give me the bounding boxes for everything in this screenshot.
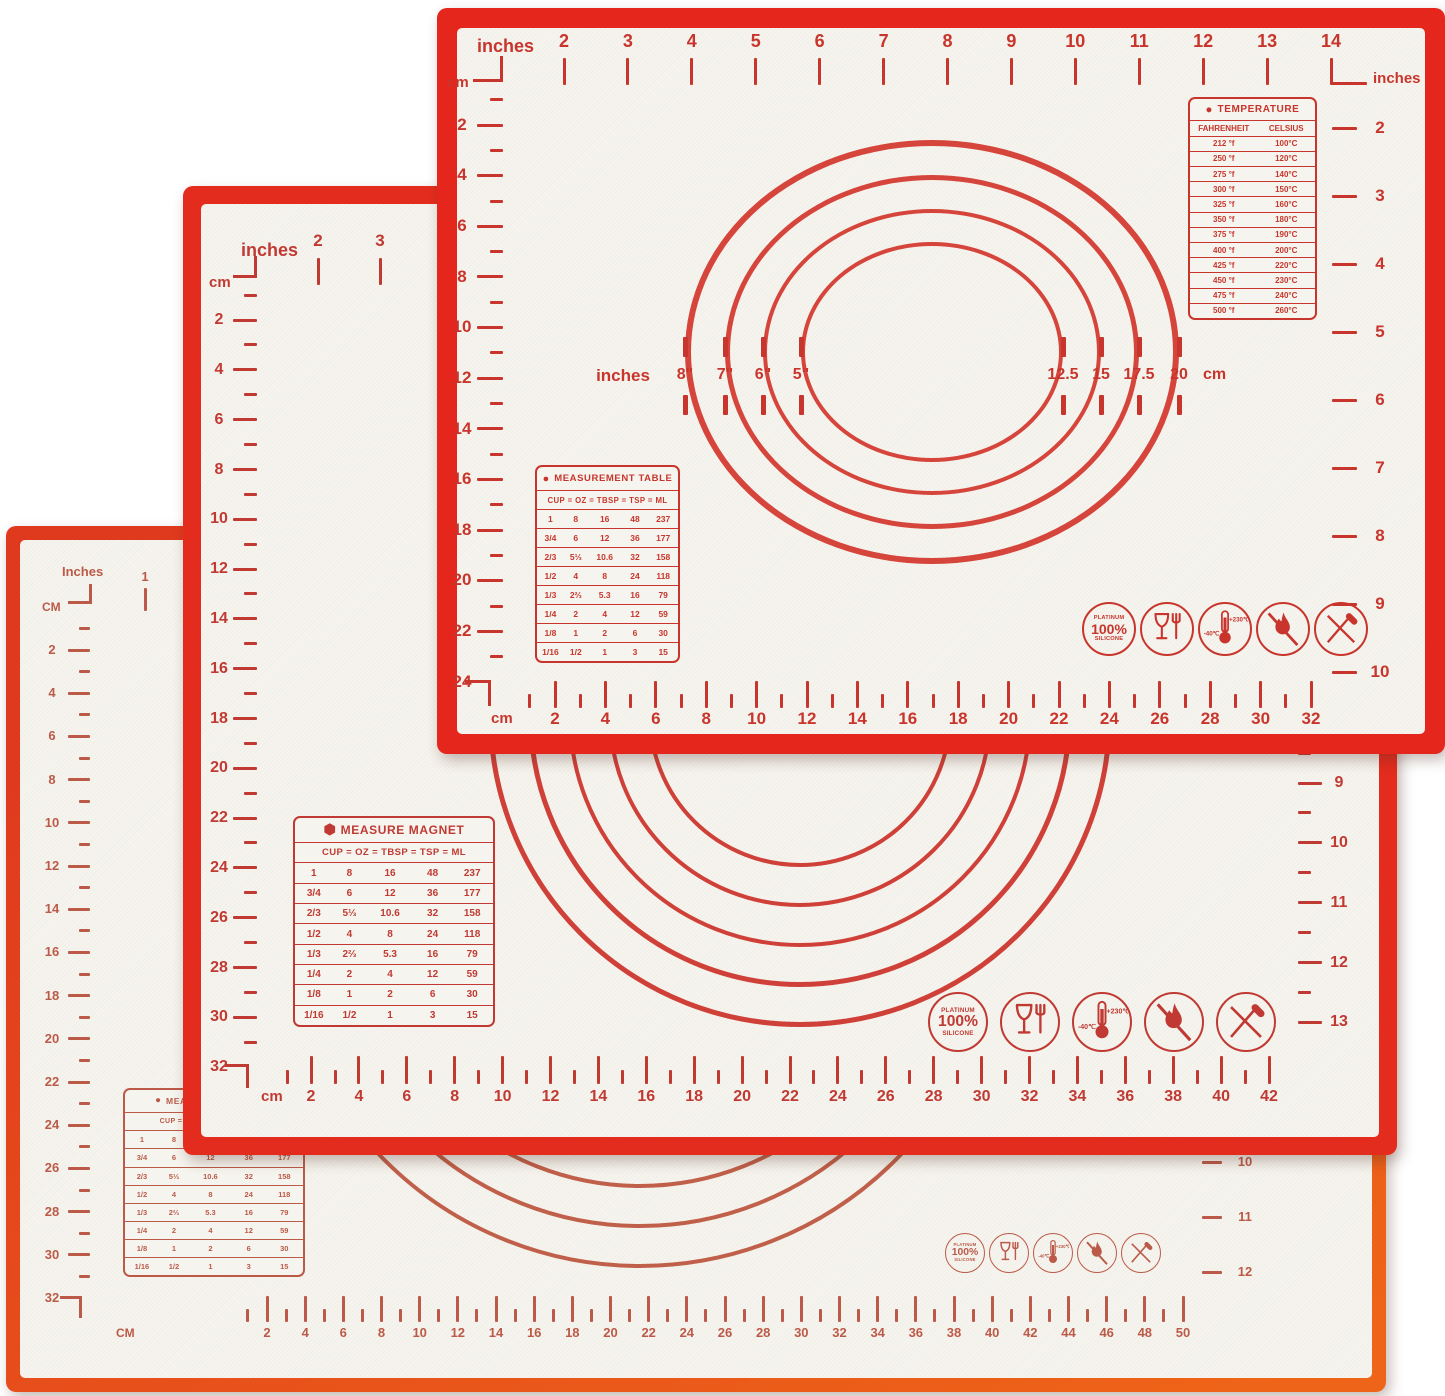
table-cell: 6 — [159, 1153, 189, 1162]
ruler-number: 34 — [1053, 1088, 1101, 1106]
ruler-tick — [477, 124, 503, 127]
ruler-tick — [1124, 1056, 1127, 1084]
ruler-tick — [244, 991, 257, 994]
table-cell: 3 — [232, 1262, 266, 1271]
ruler-tick — [693, 1056, 696, 1084]
ruler-tick — [946, 58, 949, 85]
table-cell: 36 — [414, 888, 452, 899]
table-cell: 1/2 — [159, 1262, 189, 1271]
table-header-cell: FAHRENHEIT — [1190, 124, 1258, 133]
table-row: 2/35⅓10.632158 — [295, 903, 493, 923]
ruler-tick — [68, 1037, 90, 1040]
ruler-tick — [1138, 58, 1141, 85]
ruler-tick — [781, 1309, 784, 1322]
ruler-tick — [266, 1296, 269, 1322]
table-title-row: ●TEMPERATURE — [1190, 99, 1315, 120]
temperature-table: ●TEMPERATUREFAHRENHEITCELSIUS212 °f100°C… — [1188, 97, 1317, 320]
table-cell: 1 — [159, 1244, 189, 1253]
ruler-number: 7 — [1356, 459, 1404, 478]
ruler-number: 42 — [1245, 1088, 1293, 1106]
ruler-tick — [246, 1309, 249, 1322]
no-open-flame-icon — [1256, 602, 1310, 656]
ruler-tick — [477, 174, 503, 177]
ruler-tick — [79, 1059, 90, 1062]
ruler-tick — [932, 694, 935, 708]
ruler-tick — [244, 592, 257, 595]
ruler-number: 2 — [287, 1088, 335, 1106]
ruler-number: 4 — [581, 710, 629, 729]
table-cell: 1 — [366, 1010, 414, 1021]
table-cell: 120°C — [1258, 154, 1316, 163]
table-cell: 190°C — [1258, 230, 1316, 239]
table-cell: 1 — [588, 647, 622, 657]
ruler-tick — [68, 1124, 90, 1127]
ruler-tick — [800, 1296, 803, 1322]
table-row: 425 °f220°C — [1190, 257, 1315, 272]
ruler-tick — [68, 778, 90, 781]
ruler-tick — [1162, 1309, 1165, 1322]
table-cell: 15 — [266, 1262, 303, 1271]
measurement-table: ●MEASUREMENT TABLECUP = OZ = TBSP = TSP … — [535, 465, 680, 663]
ruler-tick — [233, 568, 257, 571]
table-cell: 220°C — [1258, 261, 1316, 270]
silicone-mat-front-top: inches8"7"6"5"12.51517.520cminches234567… — [437, 8, 1445, 754]
ruler-number: 18 — [670, 1088, 718, 1106]
table-row: 3/461236177 — [295, 883, 493, 903]
ruler-number: 38 — [1149, 1088, 1197, 1106]
ruler-tick — [932, 1056, 935, 1084]
ruler-tick — [1298, 931, 1311, 934]
ruler-tick — [68, 908, 90, 911]
ruler-tick — [724, 1296, 727, 1322]
platinum-text: SILICONE — [942, 1030, 973, 1037]
table-cell: 4 — [564, 571, 588, 581]
ruler-unit-label: CM — [116, 1326, 135, 1340]
platinum-text: SILICONE — [1095, 636, 1123, 643]
table-cell: 16 — [366, 868, 414, 879]
table-cell: 10.6 — [189, 1172, 232, 1181]
ruler-tick — [490, 503, 503, 506]
ruler-tick — [68, 951, 90, 954]
ruler-number: 18 — [934, 710, 982, 729]
table-cell: 32 — [622, 552, 649, 562]
ruler-number: 12 — [1179, 32, 1227, 52]
ruler-tick — [669, 1070, 672, 1084]
food-grade-icon — [1140, 602, 1194, 656]
ruler-tick — [1268, 1056, 1271, 1084]
ruler-tick — [705, 681, 708, 708]
ruler-tick — [895, 1309, 898, 1322]
table-title: MEASURE MAGNET — [341, 823, 465, 837]
ruler-tick — [323, 1309, 326, 1322]
ruler-tick — [571, 1296, 574, 1322]
ruler-tick — [477, 579, 503, 582]
ruler-tick — [490, 250, 503, 253]
ruler-tick — [1143, 1296, 1146, 1322]
table-cell: 100°C — [1258, 139, 1316, 148]
table-cell: 1/3 — [125, 1208, 159, 1217]
ruler-tick — [1105, 1296, 1108, 1322]
table-cell: 2 — [366, 989, 414, 1000]
ruler-tick — [717, 1070, 720, 1084]
ruler-number: 5 — [1356, 323, 1404, 342]
ruler-number: 2 — [531, 710, 579, 729]
ruler-number: 32 — [1287, 710, 1335, 729]
circle-label-tick — [1177, 395, 1182, 415]
ruler-tick — [233, 617, 257, 620]
table-cell: 400 °f — [1190, 246, 1258, 255]
ruler-tick — [490, 98, 503, 101]
ruler-number: 8 — [924, 32, 972, 52]
ruler-tick — [765, 1070, 768, 1084]
temp-min-label: -40℃ — [1204, 630, 1220, 637]
table-row: 450 °f230°C — [1190, 272, 1315, 287]
table-cell: 3/4 — [125, 1153, 159, 1162]
ruler-tick — [789, 1056, 792, 1084]
no-knife-icon-glyph — [1220, 996, 1272, 1048]
ruler-unit-label: Inches — [62, 564, 103, 579]
circle-label-tick — [1137, 337, 1142, 357]
table-cell: 4 — [588, 609, 622, 619]
ruler-tick — [1052, 1070, 1055, 1084]
table-cell: 475 °f — [1190, 291, 1258, 300]
temp-min-label: -40℃ — [1038, 1253, 1049, 1258]
ruler-tick — [68, 1167, 90, 1170]
table-cell: 1/2 — [125, 1190, 159, 1199]
product-image-baking-mat-set: Inches1CM2468101214161820222426283032●ME… — [0, 0, 1445, 1396]
ruler-tick — [285, 1309, 288, 1322]
ruler-tick — [79, 627, 90, 630]
circle-label-tick — [683, 395, 688, 415]
ruler-number: 26 — [862, 1088, 910, 1106]
ruler-tick — [1298, 961, 1322, 964]
circle-label-tick — [761, 395, 766, 415]
table-row: 1/161/21315 — [125, 1257, 303, 1275]
ruler-tick — [233, 767, 257, 770]
ruler-tick — [780, 694, 783, 708]
ruler-number: 10 — [479, 1088, 527, 1106]
circle-label-tick — [1099, 337, 1104, 357]
table-cell: 48 — [622, 514, 649, 524]
food-grade-icon-glyph — [993, 1237, 1025, 1269]
ruler-tick — [233, 418, 257, 421]
ruler-tick — [1332, 331, 1357, 334]
ruler-number: 9 — [987, 32, 1035, 52]
ruler-tick — [1209, 681, 1212, 708]
ruler-unit-label: cm — [447, 74, 469, 91]
table-cell: 1/8 — [125, 1244, 159, 1253]
ruler-tick — [1007, 681, 1010, 708]
circle-label-tick — [1061, 337, 1066, 357]
table-cell: 1/2 — [333, 1010, 367, 1021]
table-row: 1/4241259 — [537, 604, 678, 623]
table-cell: 8 — [588, 571, 622, 581]
ruler-tick — [654, 681, 657, 708]
temperature-range-icon-glyph: -40℃+230℃ — [1037, 1237, 1069, 1269]
ruler-tick — [490, 351, 503, 354]
no-knife-icon — [1121, 1233, 1161, 1273]
ruler-tick — [933, 1309, 936, 1322]
no-knife-icon-glyph — [1125, 1237, 1157, 1269]
ruler-unit-label: cm — [261, 1088, 283, 1105]
table-cell: 118 — [266, 1190, 303, 1199]
circle-label-tick — [799, 337, 804, 357]
ruler-tick — [906, 681, 909, 708]
temp-max-label: +230℃ — [1056, 1244, 1069, 1249]
ruler-corner-bracket — [465, 680, 491, 706]
diameter-circle — [801, 242, 1063, 462]
no-open-flame-icon-glyph — [1148, 996, 1200, 1048]
ruler-corner-bracket — [233, 256, 257, 278]
ruler-tick — [818, 58, 821, 85]
ruler-tick — [233, 368, 257, 371]
ruler-tick — [79, 713, 90, 716]
food-grade-icon — [989, 1233, 1029, 1273]
table-cell: 2⅔ — [564, 590, 588, 600]
ruler-tick — [79, 929, 90, 932]
ruler-number: 22 — [1035, 710, 1083, 729]
ruler-tick — [437, 1309, 440, 1322]
ruler-number: 8 — [1356, 527, 1404, 546]
ruler-number: 12 — [783, 710, 831, 729]
table-row: 1/812630 — [537, 623, 678, 642]
no-open-flame-icon — [1144, 992, 1204, 1052]
table-cell: 2/3 — [125, 1172, 159, 1181]
table-row: 300 °f150°C — [1190, 181, 1315, 196]
temperature-range-icon-glyph: -40℃+230℃ — [1202, 606, 1248, 652]
ruler-tick — [680, 694, 683, 708]
ruler-tick — [1100, 1070, 1103, 1084]
ruler-tick — [79, 1189, 90, 1192]
circle-label-tick — [723, 395, 728, 415]
table-row: 181648237 — [295, 862, 493, 882]
ruler-tick — [79, 1102, 90, 1105]
ruler-number: 2 — [294, 232, 342, 251]
ruler-tick — [1202, 1216, 1222, 1219]
ruler-tick — [741, 1056, 744, 1084]
table-cell: 5⅓ — [333, 908, 367, 919]
ruler-tick — [68, 1210, 90, 1213]
ruler-tick — [1234, 694, 1237, 708]
table-row: 1/4241259 — [295, 964, 493, 984]
table-row: 275 °f140°C — [1190, 166, 1315, 181]
measure-magnet-table: ⬢MEASURE MAGNETCUP = OZ = TBSP = TSP = M… — [293, 816, 495, 1027]
circle-label-tick — [723, 337, 728, 357]
table-cell: 1/4 — [295, 969, 333, 980]
table-cell: 12 — [232, 1226, 266, 1235]
table-row: 325 °f160°C — [1190, 196, 1315, 211]
ruler-tick — [244, 443, 257, 446]
ruler-tick — [244, 543, 257, 546]
table-cell: 6 — [232, 1244, 266, 1253]
no-knife-icon — [1314, 602, 1368, 656]
table-cell: 15 — [648, 647, 678, 657]
ruler-tick — [1298, 871, 1311, 874]
ruler-tick — [501, 1056, 504, 1084]
ruler-tick — [1032, 694, 1035, 708]
table-cell: 1 — [295, 868, 333, 879]
table-header-row: CUP = OZ = TBSP = TSP = ML — [537, 490, 678, 509]
table-row: 475 °f240°C — [1190, 288, 1315, 303]
ruler-number: 10 — [1315, 834, 1363, 852]
ruler-tick — [1184, 694, 1187, 708]
ruler-number: 4 — [335, 1088, 383, 1106]
ruler-tick — [79, 670, 90, 673]
table-row: 500 °f260°C — [1190, 303, 1315, 318]
table-cell: 3 — [414, 1010, 452, 1021]
table-cell: 8 — [366, 929, 414, 940]
ruler-tick — [554, 681, 557, 708]
table-cell: 59 — [266, 1226, 303, 1235]
ruler-number: 4 — [1356, 255, 1404, 274]
table-cell: 1/8 — [295, 989, 333, 1000]
table-cell: 16 — [232, 1208, 266, 1217]
temperature-range-icon: -40℃+230℃ — [1033, 1233, 1073, 1273]
ruler-tick — [233, 817, 257, 820]
table-header-cell: CELSIUS — [1258, 124, 1316, 133]
ruler-tick — [1010, 58, 1013, 85]
ruler-tick — [1172, 1056, 1175, 1084]
ruler-tick — [579, 694, 582, 708]
ruler-number: 14 — [1307, 32, 1355, 52]
ruler-tick — [1310, 681, 1313, 708]
ruler-number: 22 — [766, 1088, 814, 1106]
table-cell: 260°C — [1258, 306, 1316, 315]
table-cell: 118 — [648, 571, 678, 581]
ruler-tick — [490, 301, 503, 304]
table-cell: 2 — [189, 1244, 232, 1253]
table-cell: 450 °f — [1190, 276, 1258, 285]
platinum-percent: 100% — [1091, 622, 1127, 637]
table-cell: 10.6 — [366, 908, 414, 919]
table-cell: 8 — [564, 514, 588, 524]
ruler-tick — [79, 1145, 90, 1148]
ruler-tick — [244, 792, 257, 795]
ruler-tick — [477, 478, 503, 481]
ruler-tick — [1332, 127, 1357, 130]
table-cell: 230°C — [1258, 276, 1316, 285]
table-cell: 5⅓ — [159, 1172, 189, 1181]
no-open-flame-icon-glyph — [1081, 1237, 1113, 1269]
ruler-number: 10 — [1051, 32, 1099, 52]
ruler-number: 1 — [121, 570, 169, 584]
ruler-tick — [379, 258, 382, 285]
table-row: 350 °f180°C — [1190, 212, 1315, 227]
ruler-tick — [304, 1296, 307, 1322]
ruler-tick — [456, 1296, 459, 1322]
no-knife-icon — [1216, 992, 1276, 1052]
ruler-number: 30 — [958, 1088, 1006, 1106]
ruler-tick — [1244, 1070, 1247, 1084]
ruler-number: 11 — [1315, 894, 1363, 912]
ruler-number: 8 — [431, 1088, 479, 1106]
ruler-tick — [1298, 841, 1322, 844]
ruler-number: 16 — [884, 710, 932, 729]
ruler-tick — [1202, 1271, 1222, 1274]
table-row: 1/4241259 — [125, 1221, 303, 1239]
ruler-tick — [1108, 681, 1111, 708]
ruler-tick — [1330, 58, 1333, 85]
table-header-row: FAHRENHEITCELSIUS — [1190, 120, 1315, 135]
table-header-row: CUP = OZ = TBSP = TSP = ML — [295, 842, 493, 862]
table-row: 2/35⅓10.632158 — [125, 1167, 303, 1185]
ruler-tick — [244, 294, 257, 297]
ruler-tick — [244, 941, 257, 944]
ruler-number: 13 — [1243, 32, 1291, 52]
ruler-tick — [68, 865, 90, 868]
ruler-tick — [79, 1232, 90, 1235]
table-cell: 1/4 — [125, 1226, 159, 1235]
ruler-tick — [626, 58, 629, 85]
ruler-number: 12 — [1221, 1265, 1269, 1279]
ruler-number: 6 — [796, 32, 844, 52]
ruler-tick — [914, 1296, 917, 1322]
ruler-tick — [233, 518, 257, 521]
ruler-tick — [956, 1070, 959, 1084]
food-grade-icon-glyph — [1004, 996, 1056, 1048]
ruler-tick — [233, 916, 257, 919]
table-cell: 1/16 — [537, 647, 564, 657]
ruler-tick — [418, 1296, 421, 1322]
table-cell: 2/3 — [295, 908, 333, 919]
ruler-tick — [68, 1253, 90, 1256]
ruler-tick — [857, 1309, 860, 1322]
ruler-tick — [361, 1309, 364, 1322]
table-cell: 1 — [125, 1135, 159, 1144]
ruler-unit-label: CM — [42, 600, 61, 614]
ruler-number: 3 — [356, 232, 404, 251]
ruler-tick — [704, 1309, 707, 1322]
ruler-tick — [1332, 195, 1357, 198]
table-cell: 150°C — [1258, 185, 1316, 194]
ruler-tick — [233, 866, 257, 869]
table-title-row: ●MEASUREMENT TABLE — [537, 467, 678, 490]
ruler-tick — [490, 200, 503, 203]
ruler-tick — [836, 1056, 839, 1084]
ruler-unit-label: cm — [209, 274, 231, 291]
ruler-tick — [244, 692, 257, 695]
ruler-number: 14 — [574, 1088, 622, 1106]
ruler-tick — [381, 1070, 384, 1084]
table-cell: 158 — [648, 552, 678, 562]
temperature-range-icon: -40℃+230℃ — [1072, 992, 1132, 1052]
circle-diameter-label: 20 — [1155, 366, 1203, 384]
ruler-tick — [549, 1056, 552, 1084]
ruler-tick — [881, 694, 884, 708]
ruler-tick — [514, 1309, 517, 1322]
ruler-tick — [68, 994, 90, 997]
ruler-tick — [1058, 681, 1061, 708]
table-cell: 2 — [333, 969, 367, 980]
ruler-tick — [685, 1296, 688, 1322]
ruler-tick — [79, 973, 90, 976]
ruler-tick — [528, 694, 531, 708]
temp-max-label: +230℃ — [1107, 1008, 1128, 1016]
table-cell: 1/16 — [125, 1262, 159, 1271]
ruler-tick — [453, 1056, 456, 1084]
ruler-tick — [690, 58, 693, 85]
table-cell: 5.3 — [189, 1208, 232, 1217]
table-cell: 237 — [648, 514, 678, 524]
ruler-corner-bracket — [68, 584, 92, 604]
ruler-number: 3 — [604, 32, 652, 52]
ruler-tick — [380, 1296, 383, 1322]
ruler-tick — [1076, 1056, 1079, 1084]
table-cell: 500 °f — [1190, 306, 1258, 315]
table-cell: 158 — [266, 1172, 303, 1181]
ruler-tick — [831, 694, 834, 708]
table-cell: 30 — [648, 628, 678, 638]
